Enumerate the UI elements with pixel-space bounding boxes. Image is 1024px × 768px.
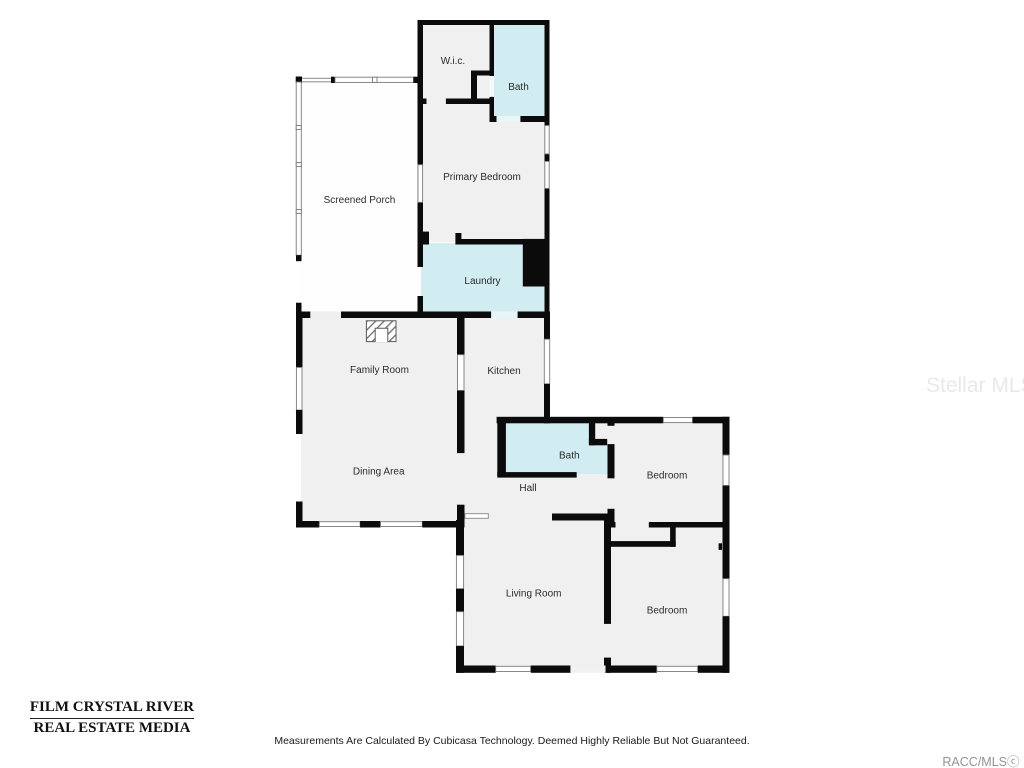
svg-text:Hall: Hall: [519, 483, 536, 494]
svg-text:Laundry: Laundry: [464, 276, 500, 287]
svg-text:Family Room: Family Room: [350, 365, 409, 376]
svg-text:Bedroom: Bedroom: [647, 471, 688, 482]
svg-text:Bedroom: Bedroom: [647, 606, 688, 617]
svg-text:Primary Bedroom: Primary Bedroom: [443, 172, 521, 183]
svg-text:W.i.c.: W.i.c.: [441, 56, 465, 67]
svg-text:Dining Area: Dining Area: [353, 467, 405, 478]
svg-text:Living Room: Living Room: [506, 589, 562, 600]
svg-text:Bath: Bath: [559, 451, 580, 462]
svg-text:Screened Porch: Screened Porch: [324, 195, 396, 206]
svg-text:Bath: Bath: [508, 82, 529, 93]
svg-text:Kitchen: Kitchen: [487, 366, 520, 377]
